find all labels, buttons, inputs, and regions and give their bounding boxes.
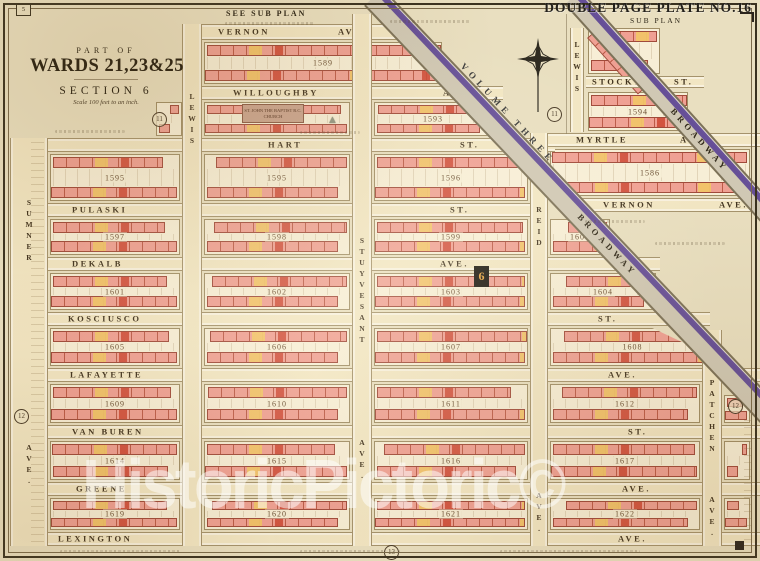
building-row <box>51 409 177 420</box>
script-annotation <box>390 20 470 23</box>
block-1615: 1615 <box>204 441 350 480</box>
street-label: GREENE <box>76 484 127 494</box>
street-label: LAFAYETTE <box>70 370 143 380</box>
block-number: 1612 <box>613 399 637 408</box>
plate-number-label: DOUBLE PAGE PLATE NO.16 <box>544 0 752 16</box>
block-number: 1621 <box>439 510 463 519</box>
street-dekalb-ave: DEKALBAVE. <box>10 257 660 271</box>
block-number: 1603 <box>439 287 463 296</box>
plate-ref-13: 13 <box>384 545 399 560</box>
block-1612: 1612 <box>550 384 700 423</box>
block-1596: 1596 <box>374 154 528 201</box>
street-label: AVE. <box>708 495 717 539</box>
street-greene-ave: GREENEAVE. <box>10 482 760 496</box>
script-annotation <box>225 22 315 25</box>
block-number: 1589 <box>311 59 335 68</box>
plate-ref-11: 11 <box>547 107 562 122</box>
plate-ref-12: 12 <box>728 399 743 414</box>
street-label: AVE. <box>440 259 469 269</box>
building-row <box>207 352 338 363</box>
atlas-map-page: VERNONAVE.WILLOUGHBYAVE.HARTST.PULASKIST… <box>0 0 760 561</box>
script-annotation <box>585 220 645 223</box>
triangle-symbol-icon: ▲ <box>327 114 338 126</box>
block-1597: 1597 <box>50 219 180 255</box>
street-stuyvesant-ave: STUYVESANTAVE. <box>352 14 372 546</box>
building-row <box>205 70 439 81</box>
block-1599: 1599 <box>374 219 528 255</box>
street-label: AVE. <box>608 370 637 380</box>
block-number: 1586 <box>638 168 662 177</box>
block-1620: 1620 <box>204 498 350 530</box>
block-1616: 1616 <box>374 441 528 480</box>
building-row <box>170 105 179 114</box>
building-row <box>53 222 165 233</box>
block-number: 1604 <box>591 287 615 296</box>
block-number: 1616 <box>439 456 463 465</box>
building-row <box>51 518 177 527</box>
block-1609: 1609 <box>50 384 180 423</box>
block-number: 1615 <box>265 456 289 465</box>
block-number: 1622 <box>613 510 637 519</box>
block-1598: 1598 <box>204 219 350 255</box>
street-label: AVE. <box>535 491 544 535</box>
margin-ruler <box>744 420 751 540</box>
building-row <box>551 466 697 477</box>
street-label: AVE. <box>622 484 651 494</box>
building-row <box>53 157 163 168</box>
block-1617: 1617 <box>550 441 700 480</box>
building-row <box>51 352 177 363</box>
street-label: MYRTLE <box>576 135 628 145</box>
block-1621: 1621 <box>374 498 528 530</box>
building-row <box>377 124 480 133</box>
street-label: AVE. <box>618 534 647 544</box>
street-label: DEKALB <box>72 259 123 269</box>
street-label: AVE. <box>358 438 367 482</box>
sub-plan-border <box>566 14 567 134</box>
building-row <box>214 222 347 233</box>
building-row <box>205 466 347 477</box>
street-hart-st: HARTST. <box>10 138 555 152</box>
building-row <box>375 296 525 307</box>
street-label: HART <box>268 140 302 150</box>
corner-ornament <box>735 541 744 550</box>
building-row <box>375 352 525 363</box>
block-1611: 1611 <box>374 384 528 423</box>
block-1610: 1610 <box>204 384 350 423</box>
building-row <box>553 296 644 307</box>
building-row <box>375 241 525 252</box>
building-row <box>207 518 338 527</box>
street-lewis-ave-subplan: LEWIS <box>570 28 584 132</box>
building-row <box>53 466 168 477</box>
margin-ruler <box>31 142 44 542</box>
block-number: 1599 <box>439 233 463 242</box>
title-divider <box>74 79 138 80</box>
block-number: 1602 <box>265 287 289 296</box>
street-label: ST. <box>674 77 693 87</box>
street-lewis-ave: LEWIS <box>182 24 202 546</box>
street-label: VERNON <box>603 200 655 210</box>
building-row <box>377 331 527 342</box>
street-lexington-ave: LEXINGTONAVE. <box>10 532 760 546</box>
corner-ornament <box>740 12 754 22</box>
block-1614: 1614 <box>50 441 180 480</box>
building-row <box>377 222 523 233</box>
building-row <box>212 276 347 287</box>
street-myrtle-ave: MYRTLEAVE. <box>530 133 760 147</box>
block-1622: 1622 <box>550 498 700 530</box>
block-number: 1596 <box>439 173 463 182</box>
block-1619: 1619 <box>50 498 180 530</box>
building-row <box>51 241 177 252</box>
street-label: PATCHEN <box>708 378 717 455</box>
street-label: REID <box>535 205 544 249</box>
script-annotation <box>300 131 360 134</box>
street-label: ST. <box>460 140 479 150</box>
block-number: 1607 <box>439 343 463 352</box>
street-label: KOSCIUSCO <box>68 314 142 324</box>
building-row <box>207 409 338 420</box>
building-row <box>384 444 525 455</box>
building-row <box>562 387 697 398</box>
building-row <box>208 387 347 398</box>
building-row <box>207 241 338 252</box>
block-number: 1617 <box>613 456 637 465</box>
street-label: WILLOUGHBY <box>233 88 319 98</box>
street-label: PULASKI <box>72 205 127 215</box>
block-1595: 1595 <box>50 154 180 201</box>
building-row <box>377 276 525 287</box>
block-1602: 1602 <box>204 273 350 310</box>
block-number: 1608 <box>621 343 645 352</box>
block-1607: 1607 <box>374 328 528 366</box>
street-label: ST. <box>598 314 617 324</box>
street-label: VAN BUREN <box>72 427 144 437</box>
plate-ref-11: 11 <box>152 112 167 127</box>
block-1606: 1606 <box>204 328 350 366</box>
block-number: 1606 <box>265 343 289 352</box>
street-label: LEXINGTON <box>58 534 132 544</box>
building-row <box>727 501 739 510</box>
building-row <box>375 187 525 198</box>
title-wards: WARDS 21,23&25 <box>30 56 182 77</box>
sub-plan-label: SUB PLAN <box>630 16 682 25</box>
script-annotation <box>55 130 125 133</box>
building-row <box>53 387 171 398</box>
block-1605: 1605 <box>50 328 180 366</box>
building-row <box>53 276 167 287</box>
street-van-buren-st: VAN BURENST. <box>10 425 760 439</box>
street-label: ST. <box>450 205 469 215</box>
block-number: 1593 <box>421 115 445 124</box>
script-annotation <box>655 242 725 245</box>
block-1601: 1601 <box>50 273 180 310</box>
title-scale-note: Scale 100 feet to an inch. <box>30 99 182 106</box>
block-number: 1614 <box>103 456 127 465</box>
see-sub-plan-label: SEE SUB PLAN <box>226 9 306 18</box>
building-row <box>53 331 169 342</box>
building-row <box>553 352 703 363</box>
block-number: 1597 <box>103 233 127 242</box>
section-six-marker: 6 <box>474 266 489 287</box>
street-pulaski-st: PULASKIST. <box>10 203 532 217</box>
block-number: 1620 <box>265 510 289 519</box>
block-number: 1595 <box>265 173 289 182</box>
block-number: 1594 <box>626 107 650 116</box>
building-row <box>375 518 525 527</box>
church-building-label: ST. JOHN THE BAPTIST R.C. CHURCH <box>242 104 304 123</box>
street-label: LEWIS <box>573 40 582 95</box>
building-row <box>377 387 511 398</box>
building-row <box>553 444 695 455</box>
script-annotation <box>60 550 180 553</box>
street-vernon-ave-east: VERNONAVE. <box>575 198 760 212</box>
street-lafayette-ave: LAFAYETTEAVE. <box>10 368 760 382</box>
block-1595: 1595 <box>204 154 350 201</box>
street-label: VERNON <box>218 27 270 37</box>
street-label: ST. <box>628 427 647 437</box>
corner-plate-mark: 5 <box>16 4 31 16</box>
block-number: 1598 <box>265 233 289 242</box>
building-row <box>207 296 338 307</box>
block-number: 1595 <box>103 173 127 182</box>
building-row <box>553 182 738 193</box>
title-section: SECTION 6 <box>30 85 182 97</box>
building-row <box>52 444 177 455</box>
building-row <box>51 187 177 198</box>
plate-ref-12: 12 <box>14 409 29 424</box>
building-row <box>727 466 738 477</box>
building-row <box>207 444 335 455</box>
building-row <box>553 409 688 420</box>
block-number: 1610 <box>265 399 289 408</box>
title-part-of: PART OF <box>30 46 182 55</box>
building-row <box>207 187 338 198</box>
block-number: 1609 <box>103 399 127 408</box>
block-number: 1605 <box>103 343 127 352</box>
block-1603: 1603 <box>374 273 528 310</box>
building-row <box>377 157 521 168</box>
building-row <box>51 296 177 307</box>
street-label: LEWIS <box>188 92 197 147</box>
block-number: 1619 <box>103 510 127 519</box>
script-annotation <box>500 550 640 553</box>
building-row <box>210 331 347 342</box>
building-row <box>377 466 516 477</box>
building-row <box>375 409 525 420</box>
block-number: 1601 <box>103 287 127 296</box>
street-label: STUYVESANT <box>358 236 367 346</box>
map-title-block: PART OF WARDS 21,23&25 SECTION 6 Scale 1… <box>30 46 182 106</box>
block-number: 1611 <box>439 399 463 408</box>
building-row <box>553 518 688 527</box>
building-row <box>216 157 347 168</box>
